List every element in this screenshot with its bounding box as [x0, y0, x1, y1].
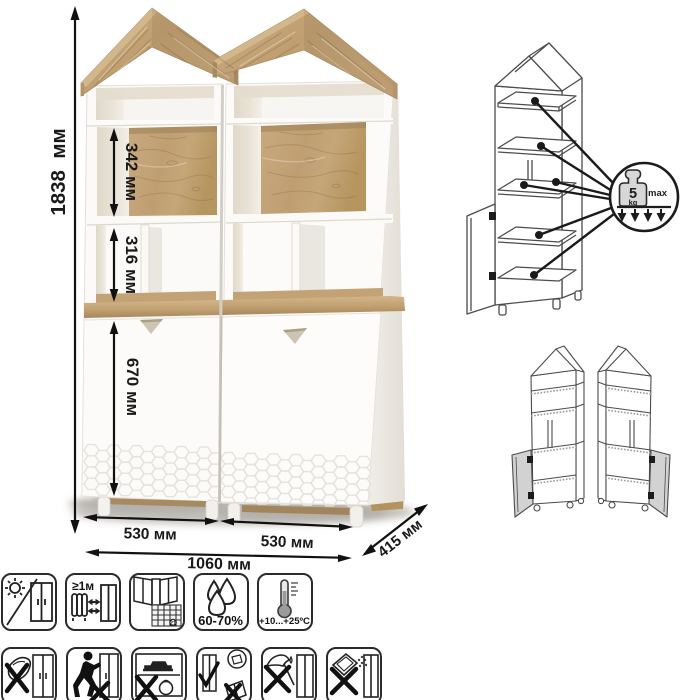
svg-text:max: max	[648, 188, 668, 199]
svg-text:≥1м: ≥1м	[72, 579, 94, 593]
svg-text:1060 мм: 1060 мм	[187, 555, 251, 574]
svg-text:316 мм: 316 мм	[122, 236, 141, 294]
svg-text:342 мм: 342 мм	[122, 143, 141, 201]
svg-text:kg: kg	[629, 198, 638, 207]
svg-text:1838 мм: 1838 мм	[47, 128, 70, 215]
svg-text:530 мм: 530 мм	[260, 533, 314, 552]
svg-text:530 мм: 530 мм	[123, 525, 177, 543]
svg-text:60-70%: 60-70%	[198, 613, 243, 628]
svg-text:21: 21	[170, 621, 177, 627]
svg-text:670 мм: 670 мм	[123, 358, 142, 416]
svg-text:+10...+25ºC: +10...+25ºC	[259, 616, 310, 627]
